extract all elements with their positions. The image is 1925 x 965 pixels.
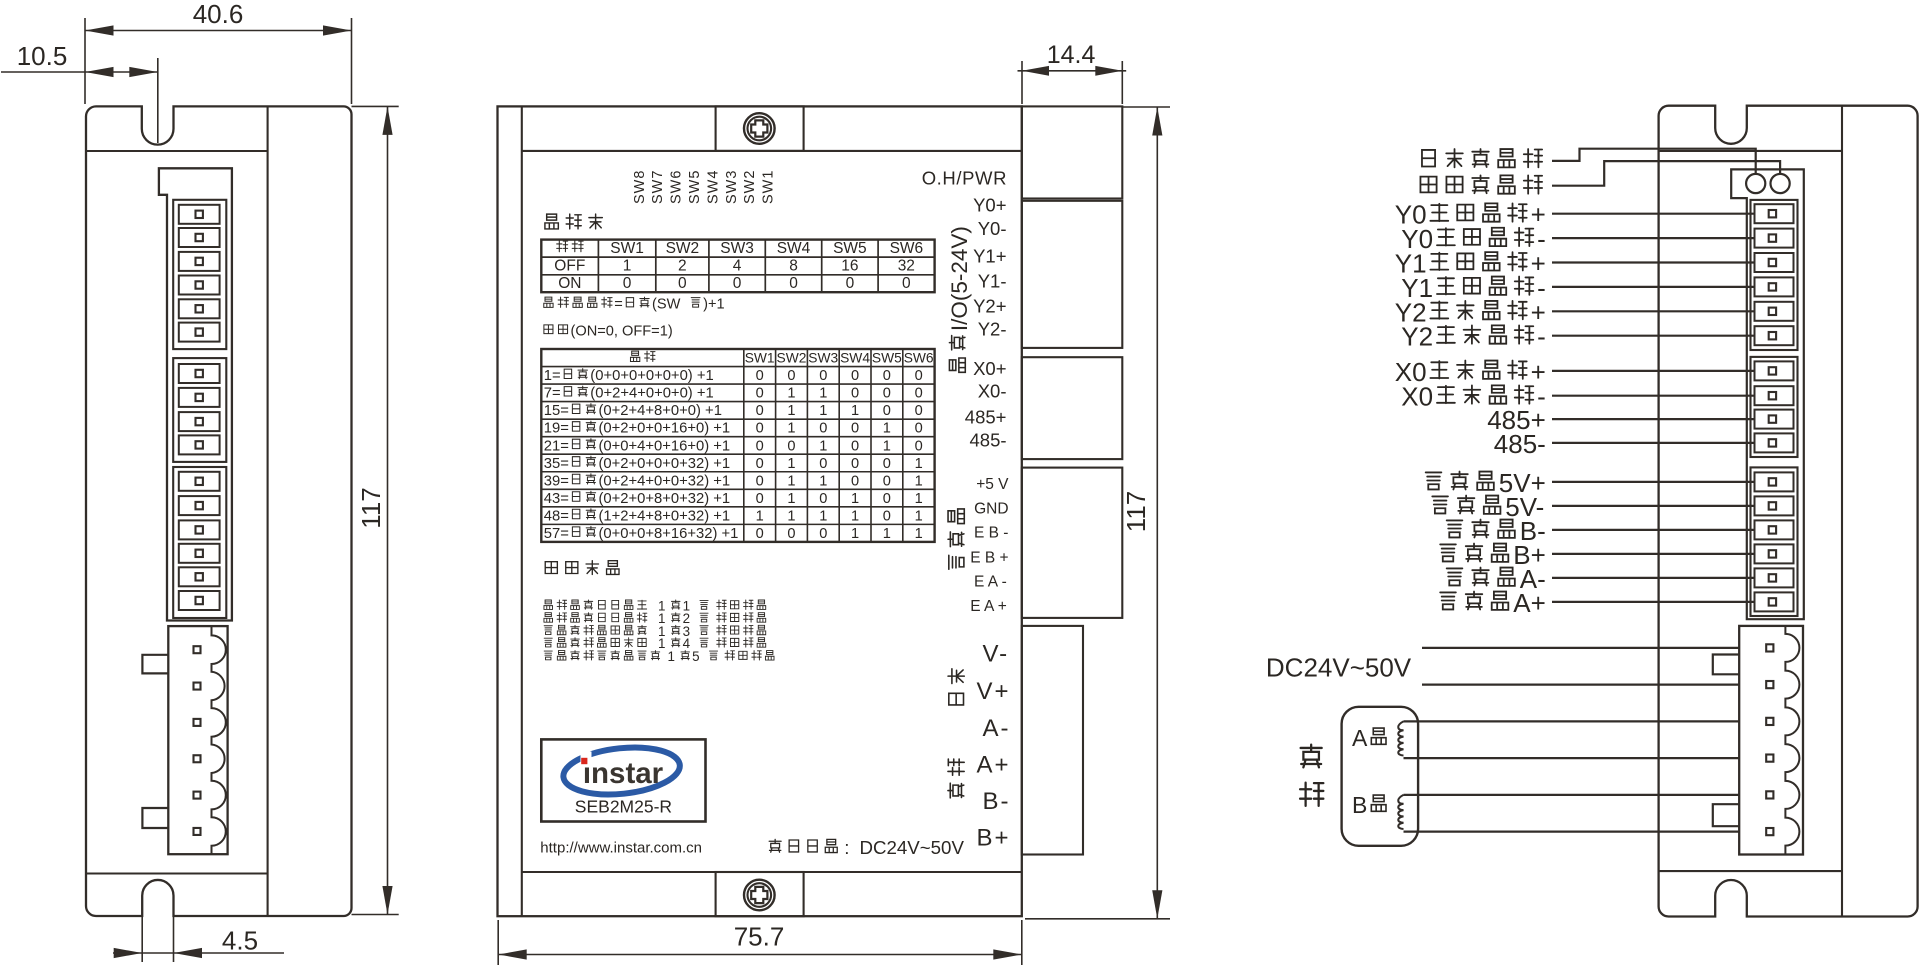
svg-text:1: 1 [787, 456, 795, 472]
svg-text:OFF: OFF [554, 258, 585, 275]
svg-text:16: 16 [841, 258, 858, 275]
svg-text:0: 0 [787, 526, 795, 542]
svg-text:SEB2M25-R: SEB2M25-R [575, 797, 672, 817]
svg-text:0: 0 [915, 368, 923, 384]
svg-text:39=: 39= [544, 473, 569, 489]
svg-text:1=: 1= [544, 368, 561, 384]
svg-text:(0+2+4+0+0+0) +1: (0+2+4+0+0+0) +1 [590, 386, 713, 402]
svg-text:1: 1 [851, 508, 859, 524]
svg-text:2: 2 [678, 258, 687, 275]
svg-text:0: 0 [819, 456, 827, 472]
svg-text:V-: V- [983, 640, 1010, 667]
svg-text:1: 1 [883, 438, 891, 454]
svg-text:X0+: X0+ [973, 358, 1006, 379]
svg-text:485-: 485- [1494, 429, 1546, 459]
svg-text:0: 0 [733, 275, 742, 292]
svg-text:instar: instar [583, 757, 664, 790]
svg-text:7=: 7= [544, 386, 561, 402]
svg-text:SW4: SW4 [777, 240, 811, 257]
svg-text:8: 8 [789, 258, 798, 275]
svg-text:SW3: SW3 [808, 351, 838, 366]
svg-text::: : [844, 837, 849, 858]
svg-text:Y0+: Y0+ [973, 194, 1006, 215]
svg-text:SW5: SW5 [833, 240, 867, 257]
svg-text:1: 1 [915, 456, 923, 472]
svg-text:A-: A- [983, 715, 1011, 742]
svg-text:Y1-: Y1- [978, 271, 1007, 292]
svg-text:SW6: SW6 [890, 240, 924, 257]
svg-text:SW1: SW1 [610, 240, 644, 257]
svg-text:SW5: SW5 [687, 170, 703, 204]
svg-text:1: 1 [851, 526, 859, 542]
svg-text:0: 0 [756, 438, 764, 454]
svg-text:+5 V: +5 V [976, 476, 1009, 493]
svg-text:4.5: 4.5 [222, 926, 258, 956]
svg-text:0: 0 [883, 456, 891, 472]
svg-text:1: 1 [668, 649, 675, 664]
svg-text:0: 0 [851, 386, 859, 402]
svg-text:(0+2+4+8+0+0) +1: (0+2+4+8+0+0) +1 [599, 403, 722, 419]
svg-text:0: 0 [756, 456, 764, 472]
svg-text:0: 0 [883, 491, 891, 507]
svg-text:0: 0 [789, 275, 798, 292]
svg-text:0: 0 [819, 491, 827, 507]
svg-text:SW4: SW4 [840, 351, 870, 366]
svg-text:0: 0 [883, 368, 891, 384]
svg-text:B: B [1352, 792, 1367, 818]
svg-text:SW3: SW3 [720, 240, 754, 257]
svg-text:SW1: SW1 [761, 170, 777, 204]
svg-text:(0+0+0+0+0+0) +1: (0+0+0+0+0+0) +1 [590, 368, 713, 384]
svg-text:DC24V~50V: DC24V~50V [860, 837, 965, 858]
svg-text:1: 1 [851, 491, 859, 507]
svg-text:1: 1 [819, 473, 827, 489]
svg-text:1: 1 [819, 508, 827, 524]
svg-text:1: 1 [819, 438, 827, 454]
svg-text:1: 1 [623, 258, 632, 275]
svg-text:I/O(5-24V): I/O(5-24V) [947, 226, 972, 331]
svg-text:DC24V~50V: DC24V~50V [1266, 653, 1412, 683]
svg-text:0: 0 [915, 438, 923, 454]
svg-text:48=: 48= [544, 508, 569, 524]
svg-text:0: 0 [819, 421, 827, 437]
svg-text:Y2+: Y2+ [973, 295, 1006, 316]
svg-text:0: 0 [851, 438, 859, 454]
svg-text:(SW: (SW [652, 297, 681, 313]
svg-text:10.5: 10.5 [17, 41, 68, 71]
svg-text:0: 0 [883, 473, 891, 489]
svg-text:Y2-: Y2- [978, 319, 1007, 340]
svg-text:19=: 19= [544, 421, 569, 437]
svg-text:0: 0 [756, 421, 764, 437]
svg-text:0: 0 [851, 368, 859, 384]
svg-text:SW4: SW4 [705, 170, 721, 204]
svg-text:SW6: SW6 [904, 351, 934, 366]
svg-text:1: 1 [658, 636, 665, 651]
svg-text:14.4: 14.4 [1047, 41, 1096, 69]
svg-text:4: 4 [683, 636, 691, 651]
svg-text:485+: 485+ [965, 406, 1007, 427]
svg-text:(0+0+0+8+16+32) +1: (0+0+0+8+16+32) +1 [599, 526, 739, 542]
svg-text:0: 0 [756, 473, 764, 489]
svg-text:485-: 485- [970, 429, 1007, 450]
svg-text:SW2: SW2 [666, 240, 700, 257]
svg-text:SW6: SW6 [669, 170, 685, 204]
svg-text:0: 0 [883, 386, 891, 402]
svg-text:21=: 21= [544, 438, 569, 454]
svg-text:SW8: SW8 [632, 170, 648, 204]
svg-text:B+: B+ [977, 825, 1011, 852]
svg-text:X0-: X0- [978, 380, 1007, 401]
svg-text:1: 1 [915, 526, 923, 542]
svg-text:SW1: SW1 [745, 351, 775, 366]
svg-text:75.7: 75.7 [734, 922, 785, 952]
svg-text:40.6: 40.6 [193, 0, 244, 29]
svg-text:4: 4 [733, 258, 742, 275]
svg-text:=: = [614, 297, 623, 313]
svg-text:1: 1 [883, 421, 891, 437]
svg-text:0: 0 [915, 403, 923, 419]
svg-text:0: 0 [819, 526, 827, 542]
svg-text:0: 0 [756, 526, 764, 542]
svg-text:E B +: E B + [970, 550, 1008, 567]
svg-text:E B -: E B - [974, 525, 1008, 542]
svg-text:O.H/PWR: O.H/PWR [922, 168, 1007, 189]
svg-text:0: 0 [902, 275, 911, 292]
svg-text:A: A [1352, 725, 1368, 751]
svg-text:(0+2+0+8+0+32) +1: (0+2+0+8+0+32) +1 [599, 491, 731, 507]
svg-text:(0+0+4+0+16+0) +1: (0+0+4+0+16+0) +1 [599, 438, 731, 454]
svg-text:B-: B- [983, 788, 1011, 815]
svg-text:SW2: SW2 [777, 351, 807, 366]
svg-text:117: 117 [356, 487, 386, 528]
svg-text:1: 1 [787, 403, 795, 419]
svg-text:0: 0 [756, 368, 764, 384]
svg-text:1: 1 [787, 491, 795, 507]
svg-text:A+: A+ [1513, 588, 1546, 618]
svg-text:1: 1 [915, 491, 923, 507]
svg-text:1: 1 [756, 508, 764, 524]
svg-text:1: 1 [787, 386, 795, 402]
svg-text:Y2: Y2 [1401, 322, 1433, 352]
svg-text:0: 0 [883, 508, 891, 524]
svg-text:1: 1 [915, 508, 923, 524]
svg-text:0: 0 [851, 421, 859, 437]
svg-text:Y0-: Y0- [978, 218, 1007, 239]
svg-text:V+: V+ [977, 678, 1011, 705]
svg-text:1: 1 [787, 508, 795, 524]
svg-text:(0+2+4+0+0+32) +1: (0+2+4+0+0+32) +1 [599, 473, 731, 489]
svg-text:0: 0 [623, 275, 632, 292]
svg-text:1: 1 [851, 403, 859, 419]
svg-text:E A +: E A + [970, 598, 1007, 615]
svg-text:SW3: SW3 [724, 170, 740, 204]
svg-text:X0: X0 [1401, 382, 1433, 412]
svg-text:(1+2+4+8+0+32) +1: (1+2+4+8+0+32) +1 [599, 508, 731, 524]
svg-text:ON: ON [558, 275, 581, 292]
svg-text:57=: 57= [544, 526, 569, 542]
svg-text:0: 0 [851, 473, 859, 489]
svg-text:0: 0 [915, 386, 923, 402]
svg-text:GND: GND [974, 501, 1008, 518]
svg-text:1: 1 [819, 386, 827, 402]
svg-text:117: 117 [1121, 491, 1151, 532]
svg-text:SW7: SW7 [650, 170, 666, 204]
svg-text:E A -: E A - [974, 574, 1007, 591]
svg-text:(ON=0, OFF=1): (ON=0, OFF=1) [571, 324, 673, 340]
svg-text:SW5: SW5 [872, 351, 902, 366]
svg-text:0: 0 [851, 456, 859, 472]
svg-text:0: 0 [883, 403, 891, 419]
svg-text:1: 1 [915, 473, 923, 489]
svg-text:0: 0 [915, 421, 923, 437]
svg-text:0: 0 [787, 368, 795, 384]
svg-text:15=: 15= [544, 403, 569, 419]
svg-text:0: 0 [819, 368, 827, 384]
svg-text:0: 0 [787, 438, 795, 454]
svg-text:(0+2+0+0+0+32) +1: (0+2+0+0+0+32) +1 [599, 456, 731, 472]
svg-text:5: 5 [692, 649, 699, 664]
svg-text:32: 32 [898, 258, 915, 275]
svg-text:http://www.instar.com.cn: http://www.instar.com.cn [540, 840, 702, 857]
svg-text:1: 1 [883, 526, 891, 542]
svg-text:)+1: )+1 [703, 297, 725, 313]
svg-text:1: 1 [787, 473, 795, 489]
svg-text:1: 1 [787, 421, 795, 437]
svg-text:1: 1 [819, 403, 827, 419]
svg-text:-: - [1537, 322, 1546, 352]
svg-text:Y1+: Y1+ [973, 246, 1006, 267]
svg-text:0: 0 [756, 386, 764, 402]
svg-text:(0+2+0+0+16+0) +1: (0+2+0+0+16+0) +1 [599, 421, 731, 437]
svg-text:35=: 35= [544, 456, 569, 472]
svg-text:SW2: SW2 [742, 170, 758, 204]
svg-text:0: 0 [678, 275, 687, 292]
svg-text:0: 0 [846, 275, 855, 292]
svg-text:0: 0 [756, 491, 764, 507]
svg-text:0: 0 [756, 403, 764, 419]
svg-text:A+: A+ [977, 752, 1011, 779]
svg-text:43=: 43= [544, 491, 569, 507]
